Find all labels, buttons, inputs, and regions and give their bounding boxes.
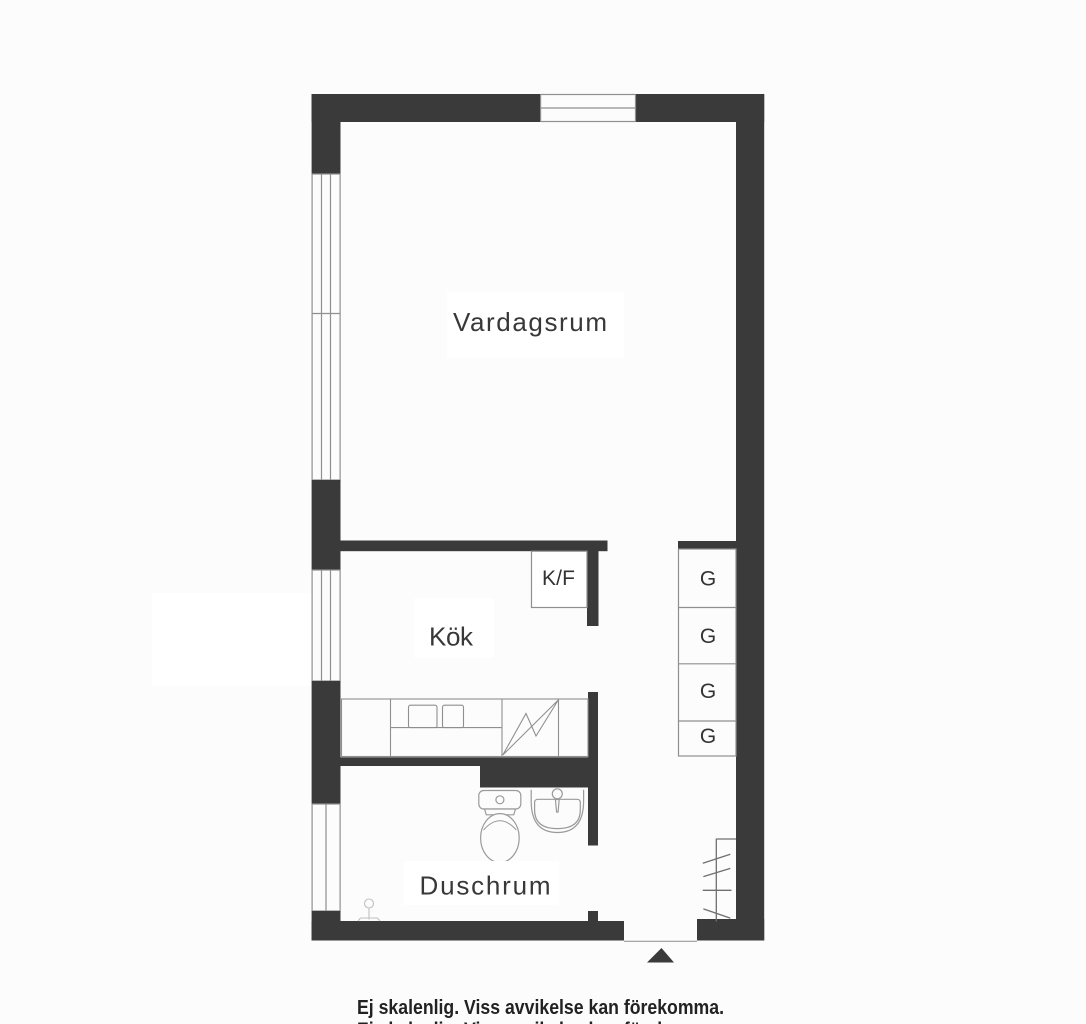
svg-text:Kök: Kök (429, 622, 474, 652)
svg-text:G: G (700, 625, 716, 648)
svg-text:Ej skalenlig. Viss avvikelse k: Ej skalenlig. Viss avvikelse kan förekom… (357, 997, 724, 1019)
svg-text:G: G (700, 725, 716, 748)
svg-text:Ej skalenlig. Viss avvikelse k: Ej skalenlig. Viss avvikelse kan förekom… (357, 1020, 724, 1024)
svg-text:G: G (700, 680, 716, 703)
svg-text:G: G (700, 568, 716, 591)
svg-text:K/F: K/F (542, 567, 575, 590)
svg-text:Duschrum: Duschrum (420, 871, 551, 901)
